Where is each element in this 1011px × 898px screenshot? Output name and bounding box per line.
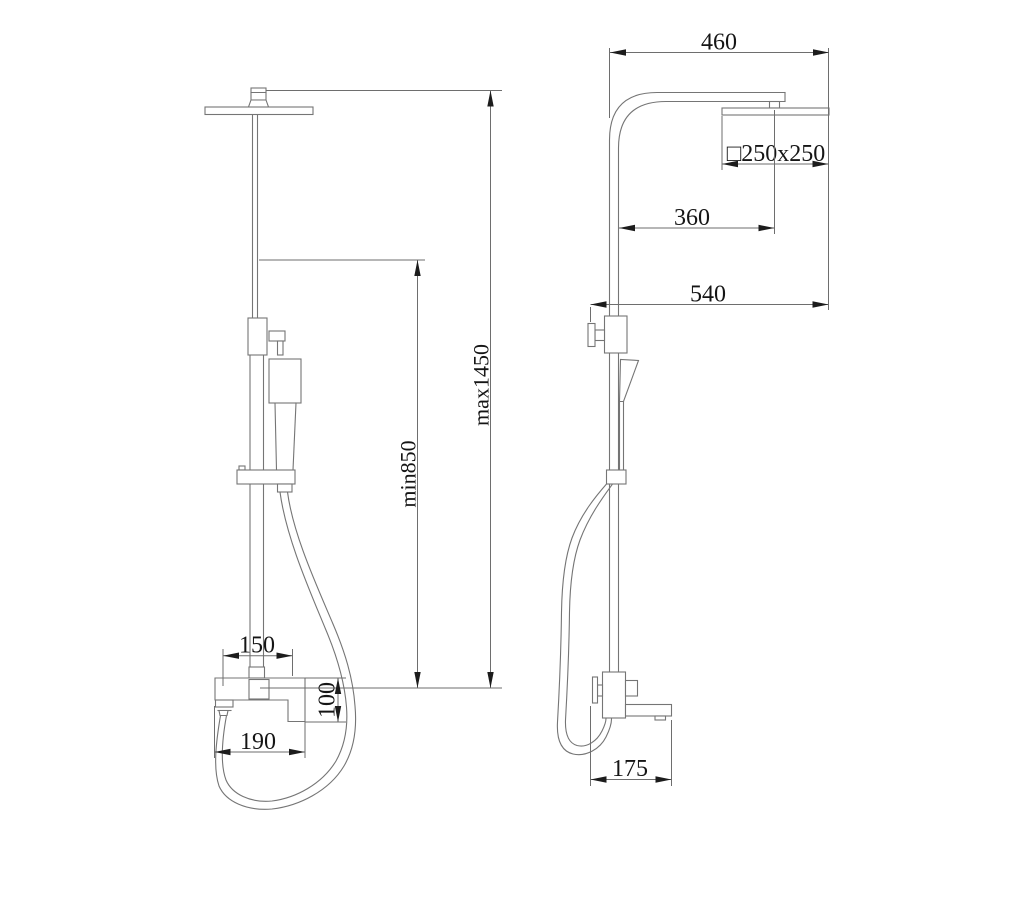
dim-label-540: 540 [690, 282, 726, 308]
hand-shower-front [269, 359, 301, 470]
mixer-outlet [216, 700, 234, 707]
dim-arm-reach: 460 [610, 30, 830, 119]
dim-label-min850: min850 [396, 440, 421, 507]
overhead-shower-front [205, 88, 313, 115]
dim-label-100: 100 [315, 682, 341, 718]
hand-shower-side [607, 360, 639, 485]
dim-head-offset: 360 [619, 110, 775, 234]
dim-label-150: 150 [239, 633, 275, 659]
mixer-valve-front [215, 667, 305, 722]
dim-head-size: □250x250 [722, 116, 829, 170]
dim-mixer-height: 100 [305, 678, 346, 722]
dim-max-height: max1450 [469, 91, 494, 689]
front-view: max1450 min850 150 100 [205, 88, 502, 809]
dim-label-190: 190 [240, 729, 276, 755]
dim-label-175: 175 [612, 756, 648, 782]
bracket-knob [588, 324, 595, 347]
diverter-knob-side [626, 681, 638, 697]
technical-drawing: max1450 min850 150 100 [0, 0, 1011, 898]
head-connector [251, 88, 266, 100]
wall-bracket-side [588, 316, 627, 353]
overhead-head-edge [722, 108, 829, 115]
drawing-canvas: max1450 min850 150 100 [0, 0, 1011, 898]
mixer-spout-side [626, 705, 672, 717]
dim-label-250x250: □250x250 [727, 141, 826, 167]
front-lower-pipe [250, 355, 264, 668]
side-pipe-and-arm [610, 93, 786, 673]
side-view: 460 □250x250 360 540 [557, 30, 829, 787]
mixer-cartridge [249, 680, 269, 700]
dim-min-height: min850 [396, 260, 421, 688]
shower-hose-front [216, 492, 356, 809]
mixer-valve-side [593, 672, 672, 720]
mixer-knob-side [593, 677, 598, 703]
hand-shower-head [269, 359, 301, 403]
height-adjuster-front [248, 318, 285, 355]
adjuster-knob [269, 331, 285, 341]
overhead-shower-side [722, 102, 829, 116]
dim-label-460: 460 [701, 30, 737, 56]
hose-clamp [607, 470, 627, 484]
dim-label-max1450: max1450 [469, 344, 494, 426]
dim-label-360: 360 [674, 205, 710, 231]
front-upper-pipe [253, 115, 258, 320]
slide-bracket-front [237, 466, 295, 492]
overhead-head-disc [205, 107, 313, 115]
